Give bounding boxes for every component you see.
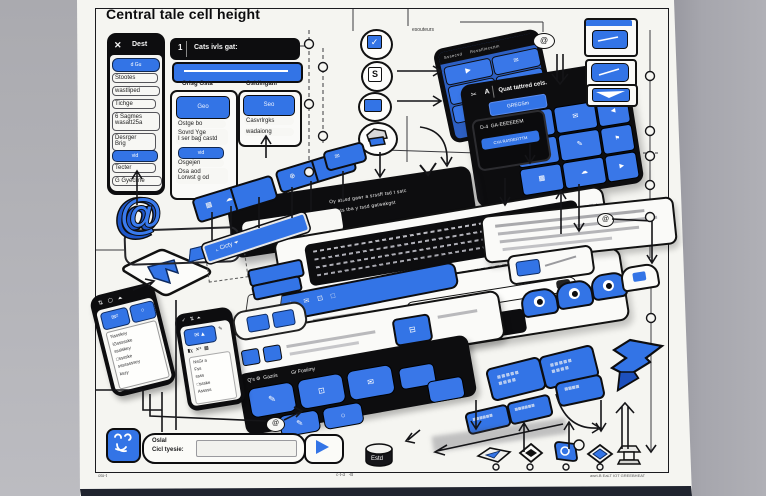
svg-text:Estd: Estd (371, 456, 383, 462)
svg-text:@: @ (120, 190, 162, 238)
